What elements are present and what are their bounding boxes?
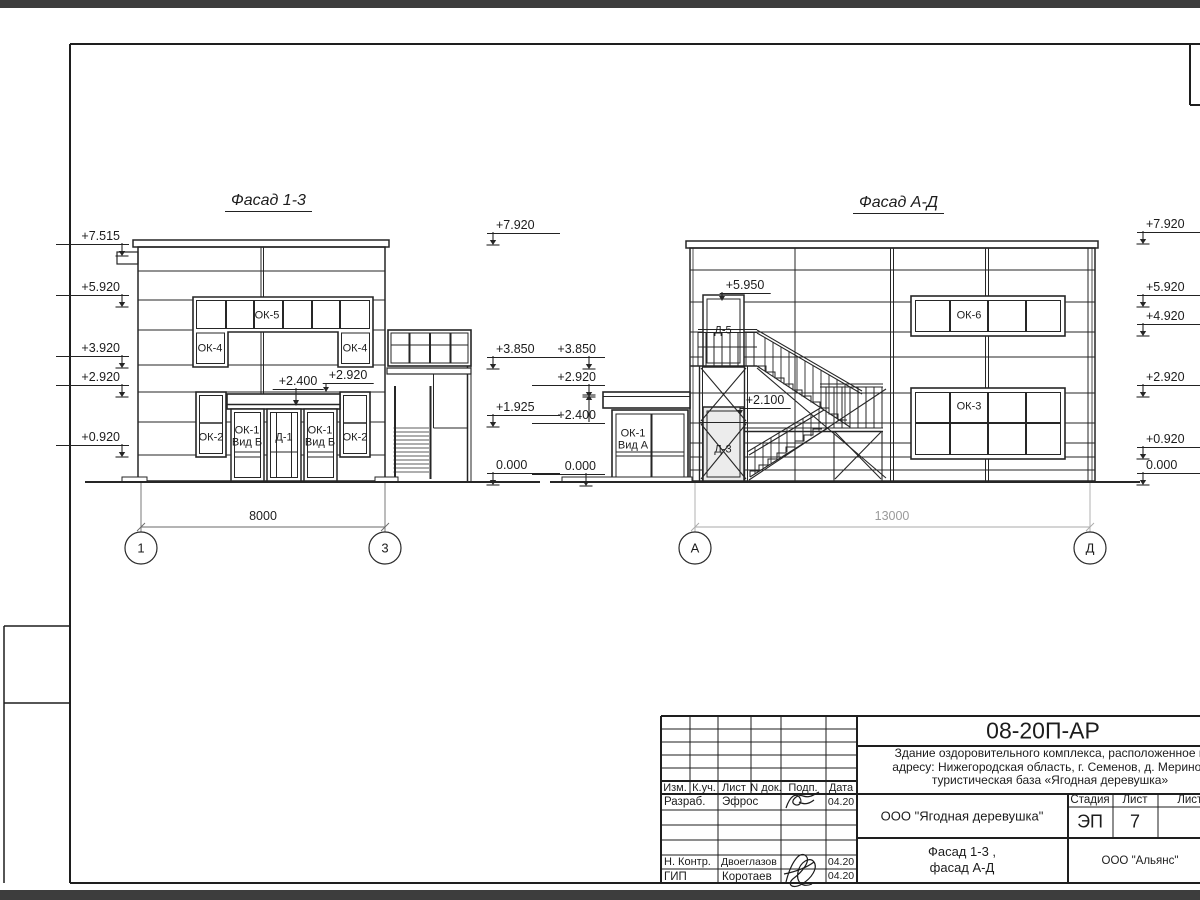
elevation-callout: +2.920	[323, 368, 374, 384]
client-name: ООО "Ягодная деревушка"	[881, 809, 1044, 824]
dimension-text: 13000	[875, 509, 910, 523]
stamp-role: Н. Контр.	[664, 856, 711, 868]
elevation-callout: +2.400	[273, 374, 324, 390]
sheet-label: Лист	[1123, 794, 1148, 806]
elevation-mark: +7.920	[487, 218, 560, 234]
stamp-header-cell: Подп.	[788, 782, 817, 794]
window-label-line: ОК-1	[621, 428, 646, 440]
sheets-label: Листов	[1177, 794, 1200, 806]
dimension-text: 8000	[249, 509, 277, 523]
elevation-mark: +7.920	[1137, 217, 1200, 233]
stamp-header-cell: Лист	[722, 782, 746, 794]
description-line: Здание оздоровительного комплекса, распо…	[895, 746, 1200, 760]
window-label: ОК-1 Вид Б	[305, 426, 335, 449]
stage-label: Стадия	[1070, 794, 1109, 806]
document-number: 08-20П-АР	[986, 718, 1100, 745]
elevation-mark: +0.920	[1137, 432, 1200, 448]
stamp-name: Эфрос	[722, 796, 758, 808]
door-label: Д-3	[714, 444, 731, 456]
description-line: адресу: Нижегородская область, г. Семено…	[892, 760, 1200, 774]
company-name: ООО "Альянс"	[1102, 855, 1179, 867]
window-label-line: ОК-1	[235, 425, 260, 437]
window-label-line: Вид Б	[305, 436, 335, 448]
elevation-callout: +2.100	[740, 393, 791, 409]
sheet-title-line: фасад А-Д	[930, 860, 995, 875]
stamp-header-cell: К.уч.	[692, 782, 716, 794]
elevation-mark: +4.920	[1137, 309, 1200, 325]
elevation-callout: +5.950	[720, 278, 771, 294]
elevation-mark: +3.850	[532, 342, 605, 358]
left-margin-boxes	[4, 626, 70, 883]
elevation-mark: +7.515	[56, 229, 129, 245]
window-label: ОК-4	[198, 343, 223, 355]
window-label: ОК-3	[957, 401, 982, 413]
window-label: ОК-1 Вид Б	[232, 426, 262, 449]
window-label-line: Вид А	[618, 439, 648, 451]
stamp-date: 04.20	[828, 796, 854, 808]
window-label: ОК-6	[957, 310, 982, 322]
elevation-mark: +2.920	[532, 370, 605, 386]
door-label: Д-1	[275, 432, 292, 444]
stamp-date: 04.20	[828, 870, 854, 882]
window-label: ОК-4	[343, 343, 368, 355]
elevation-mark: 0.000	[1137, 458, 1200, 474]
axis-bubble-label: Д	[1086, 541, 1095, 556]
elevation-mark: +2.920	[56, 370, 129, 386]
stamp-role: ГИП	[664, 871, 687, 883]
facade-1-3-title: Фасад 1-3	[225, 192, 312, 212]
window-label: ОК-2	[343, 432, 368, 444]
stamp-header-cell: N док.	[750, 782, 781, 794]
stamp-header-cell: Изм.	[663, 782, 687, 794]
elevation-mark: +3.920	[56, 341, 129, 357]
window-label: ОК-2	[199, 432, 224, 444]
signature-marks	[784, 792, 819, 886]
sheet-title: Фасад 1-3 , фасад А-Д	[862, 844, 1062, 876]
axis-bubble-label: А	[691, 541, 700, 556]
elevation-mark: 0.000	[532, 459, 605, 475]
sheet-number: 7	[1130, 812, 1140, 833]
stamp-date: 04.20	[828, 856, 854, 868]
project-description: Здание оздоровительного комплекса, распо…	[860, 747, 1200, 788]
description-line: туристическая база «Ягодная деревушка»	[932, 773, 1168, 787]
stamp-name: Двоеглазов	[721, 856, 777, 868]
facade-a-d-title: Фасад А-Д	[853, 194, 944, 214]
door-label: Д-5	[714, 325, 731, 337]
window-label-line: Вид Б	[232, 436, 262, 448]
stamp-header-cell: Дата	[829, 782, 853, 794]
elevation-mark: +5.920	[56, 280, 129, 296]
axis-bubble-label: 1	[137, 541, 144, 556]
sheet-title-line: Фасад 1-3 ,	[928, 844, 996, 859]
window-label-line: ОК-1	[308, 425, 333, 437]
stamp-role: Разраб.	[664, 796, 705, 808]
elevation-mark: +2.920	[1137, 370, 1200, 386]
elevation-mark: +0.920	[56, 430, 129, 446]
drawing-sheet-viewport: Фасад 1-3 +7.515 +5.920 +3.920 +2.920 +0…	[0, 0, 1200, 900]
window-label: ОК-5	[255, 310, 280, 322]
axis-bubble-label: 3	[381, 541, 388, 556]
window-label: ОК-1 Вид А	[618, 429, 648, 452]
stamp-name: Коротаев	[722, 871, 772, 883]
axes-and-dimensions	[125, 483, 1106, 564]
elevation-mark: +5.920	[1137, 280, 1200, 296]
stage-value: ЭП	[1077, 812, 1103, 833]
elevation-mark: +2.400	[532, 408, 605, 424]
